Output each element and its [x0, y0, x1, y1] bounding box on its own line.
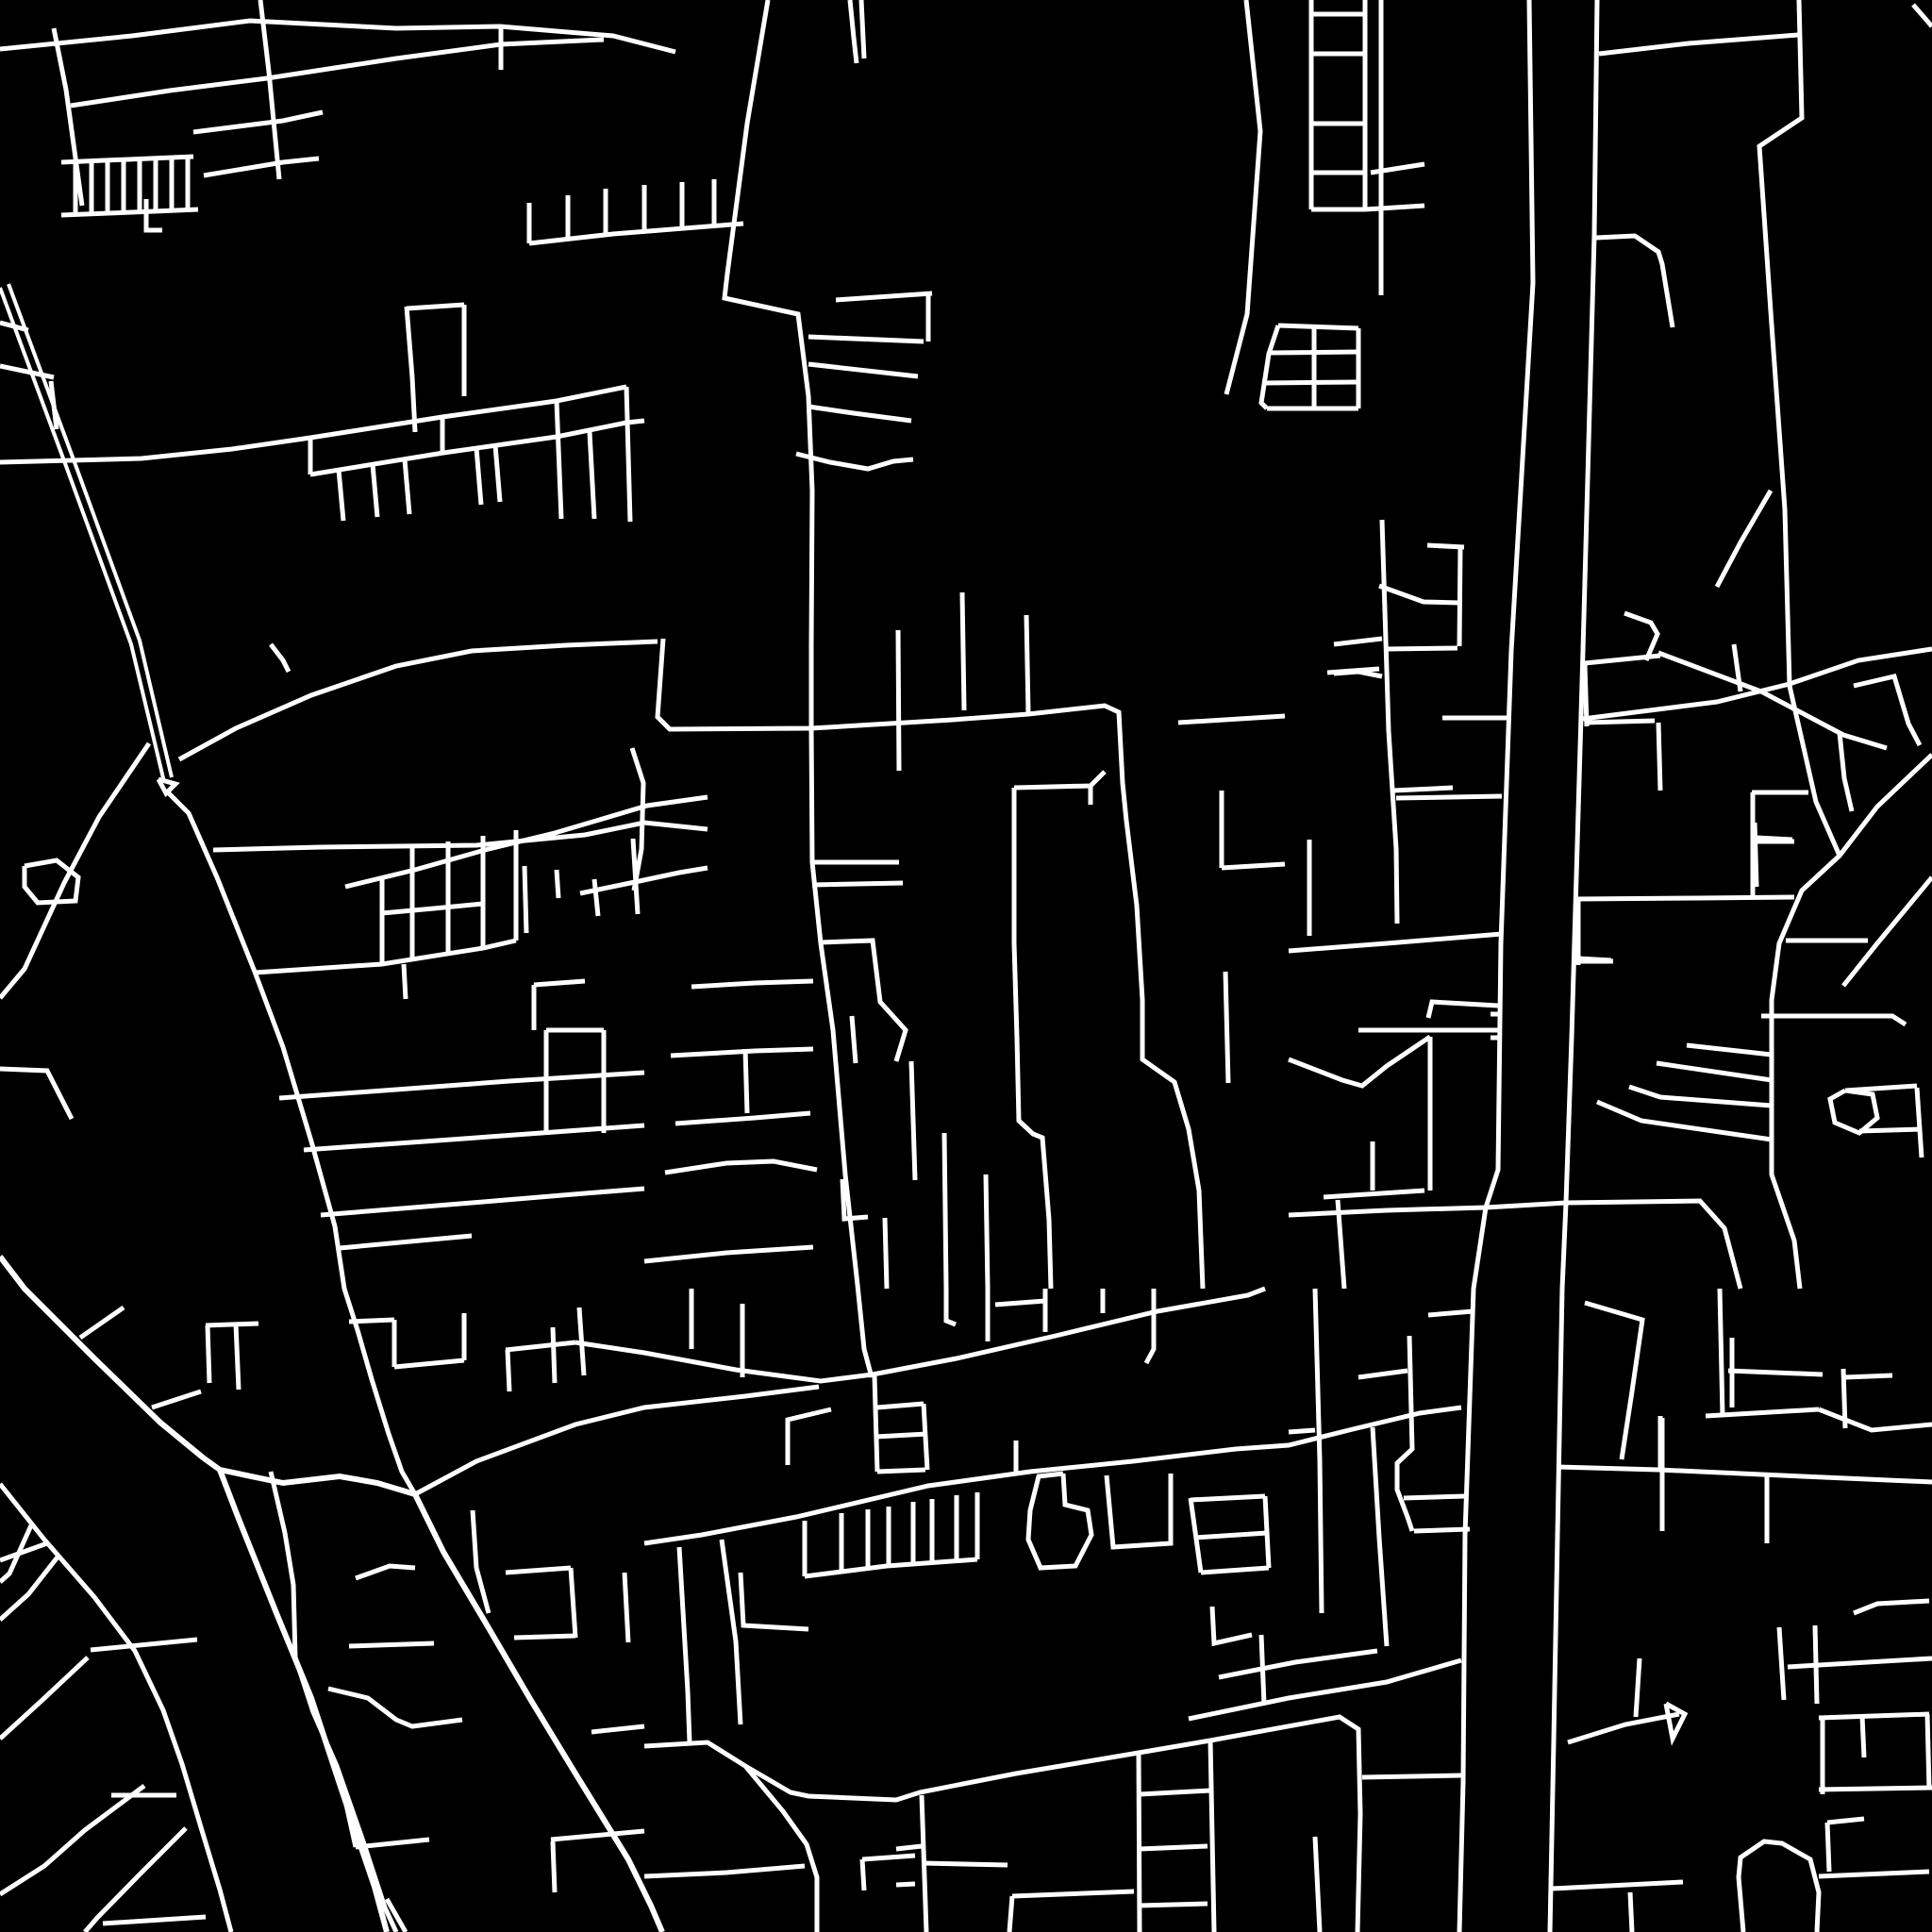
street-193 — [875, 1434, 927, 1437]
street-107 — [1393, 788, 1453, 791]
street-255 — [1843, 1369, 1845, 1428]
street-117 — [1396, 796, 1502, 798]
street-215 — [923, 1863, 1008, 1865]
street-287 — [236, 1324, 239, 1390]
street-305 — [553, 1841, 555, 1892]
street-267 — [1827, 1823, 1829, 1872]
street-146 — [557, 870, 558, 898]
street-286 — [208, 1325, 209, 1383]
street-111 — [1459, 547, 1460, 646]
street-85 — [1658, 723, 1660, 791]
street-53 — [1278, 325, 1358, 328]
street-125 — [898, 630, 899, 771]
street-265 — [1819, 1788, 1932, 1790]
street-101 — [1859, 1129, 1922, 1131]
street-114 — [1386, 648, 1457, 649]
street-248 — [1720, 1289, 1723, 1416]
street-214 — [896, 1884, 915, 1885]
street-211 — [862, 1859, 864, 1890]
street-51 — [861, 0, 864, 58]
street-194 — [877, 1470, 925, 1472]
street-256 — [1845, 1375, 1892, 1377]
street-307 — [349, 1643, 434, 1646]
street-84 — [1585, 721, 1655, 723]
street-175 — [986, 1174, 988, 1289]
street-216 — [1009, 1896, 1012, 1932]
street-241 — [1404, 1496, 1465, 1498]
street-213 — [896, 1846, 922, 1849]
street-281 — [508, 1350, 509, 1391]
street-145 — [525, 866, 526, 933]
street-112 — [1427, 545, 1464, 547]
street-225 — [1261, 1635, 1264, 1705]
street-221 — [1140, 1846, 1207, 1849]
street-240 — [1289, 1430, 1315, 1432]
street-274 — [1630, 1892, 1632, 1932]
street-132 — [812, 883, 903, 885]
street-127 — [1026, 615, 1028, 712]
street-173 — [944, 1133, 946, 1289]
street-285 — [206, 1324, 258, 1325]
road-network-svg — [0, 0, 1932, 1932]
street-282 — [553, 1327, 555, 1383]
street-126 — [962, 592, 964, 710]
street-57 — [1269, 352, 1358, 353]
street-83 — [1585, 665, 1587, 726]
map-canvas — [0, 0, 1932, 1932]
street-242 — [1414, 1529, 1470, 1531]
street-264 — [1927, 1714, 1929, 1790]
street-88 — [1576, 897, 1794, 899]
street-263 — [1862, 1716, 1864, 1757]
street-143 — [404, 964, 406, 999]
street-174 — [885, 1218, 887, 1289]
street-276 — [349, 1320, 394, 1322]
street-180 — [1225, 972, 1228, 1083]
street-58 — [1264, 382, 1358, 383]
street-169 — [745, 1049, 747, 1113]
street-244 — [1362, 1775, 1461, 1777]
street-301 — [514, 1636, 575, 1638]
street-222 — [1139, 1904, 1207, 1906]
street-190 — [874, 1376, 877, 1472]
